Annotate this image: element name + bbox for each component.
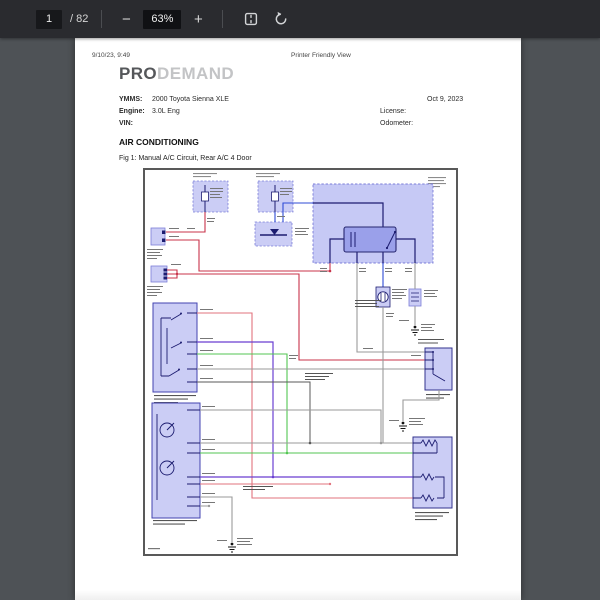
wiring-diagram [143,168,458,556]
date-value: Oct 9, 2023 [427,96,463,103]
pdf-toolbar: 1 / 82 − 63% + [0,0,600,38]
page-number-input[interactable]: 1 [36,10,62,29]
frame-footnote-mark [148,548,160,549]
zoom-level-input[interactable]: 63% [143,10,181,29]
green-junction [286,452,289,455]
wire-end-dot [208,505,210,507]
vin-label: VIN: [119,120,133,127]
printer-friendly-view-label: Printer Friendly View [291,52,351,59]
fit-page-icon [243,11,259,27]
rotate-button[interactable] [270,8,292,30]
red-junction [176,273,178,275]
prodemand-logo: PRODEMAND [119,64,234,84]
rotate-counterclockwise-icon [273,11,289,27]
page-count-label: / 82 [70,13,88,25]
rear-blower-resistor [413,437,452,520]
zoom-out-button[interactable]: − [115,8,137,30]
engine-label: Engine: [119,108,145,115]
purple-junction [272,476,275,479]
ymms-label: YMMS: [119,96,142,103]
fuse-box-1 [193,181,228,212]
ymms-value: 2000 Toyota Sienna XLE [152,96,229,103]
engine-value: 3.0L Eng [152,108,180,115]
relay [344,227,396,252]
toolbar-divider [222,10,223,28]
figure-caption: Fig 1: Manual A/C Circuit, Rear A/C 4 Do… [119,155,252,162]
toolbar-divider [101,10,102,28]
zoom-in-button[interactable]: + [187,8,209,30]
pdf-viewer-area: 9/10/23, 9:49 Printer Friendly View PROD… [0,38,600,600]
logo-light: DEMAND [157,64,234,83]
print-timestamp: 9/10/23, 9:49 [92,52,130,59]
odometer-label: Odometer: [380,120,413,127]
red-junction [329,270,332,273]
dark-junction [309,442,312,445]
wire-end-dot [329,483,331,485]
relay-assembly-box [313,184,433,263]
gray-junction [380,442,383,445]
logo-bold: PRO [119,64,157,83]
fit-page-button[interactable] [240,8,262,30]
pdf-page: 9/10/23, 9:49 Printer Friendly View PROD… [75,38,521,600]
license-label: License: [380,108,406,115]
section-title: AIR CONDITIONING [119,137,199,147]
fuse-box-2 [258,181,293,212]
